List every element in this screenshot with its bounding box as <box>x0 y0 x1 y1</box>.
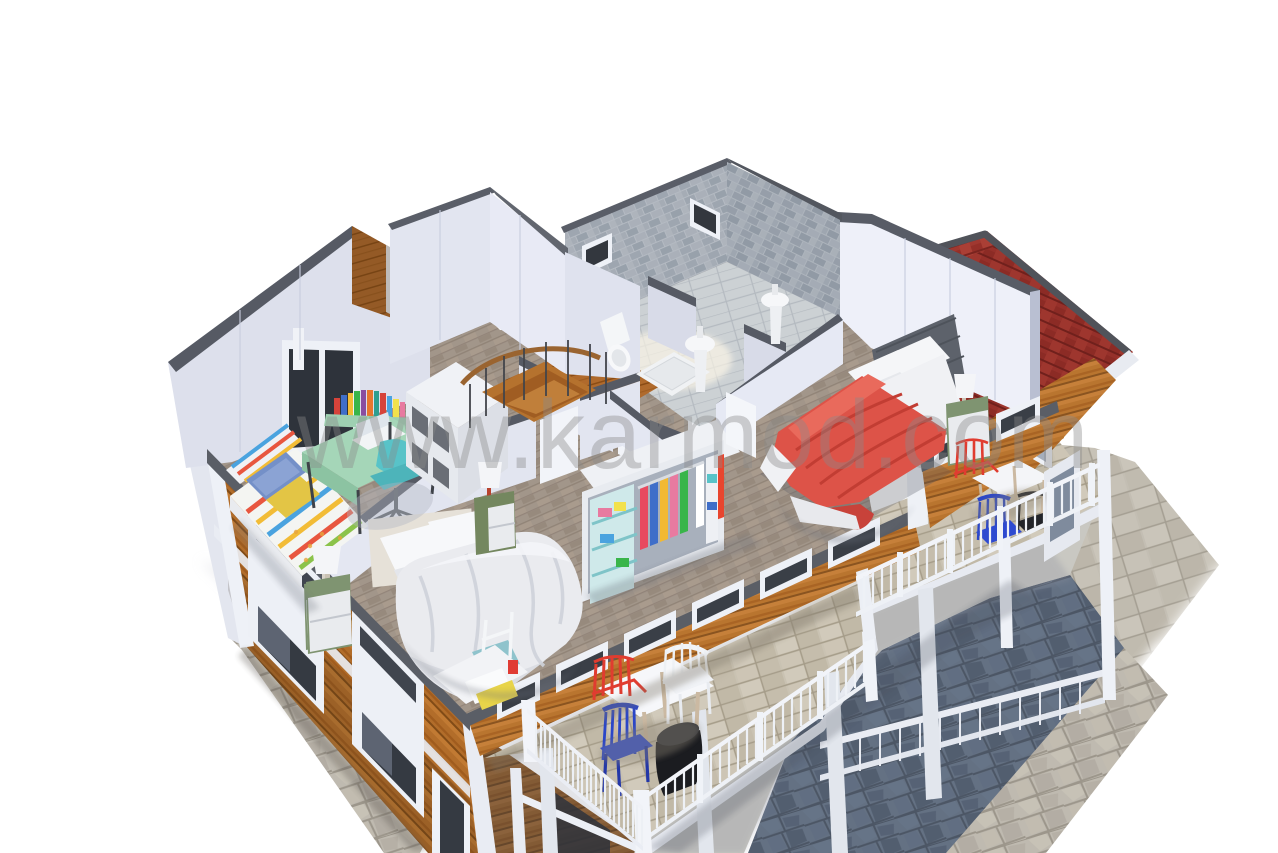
svg-text:www.karmod.com: www.karmod.com <box>296 380 1090 489</box>
